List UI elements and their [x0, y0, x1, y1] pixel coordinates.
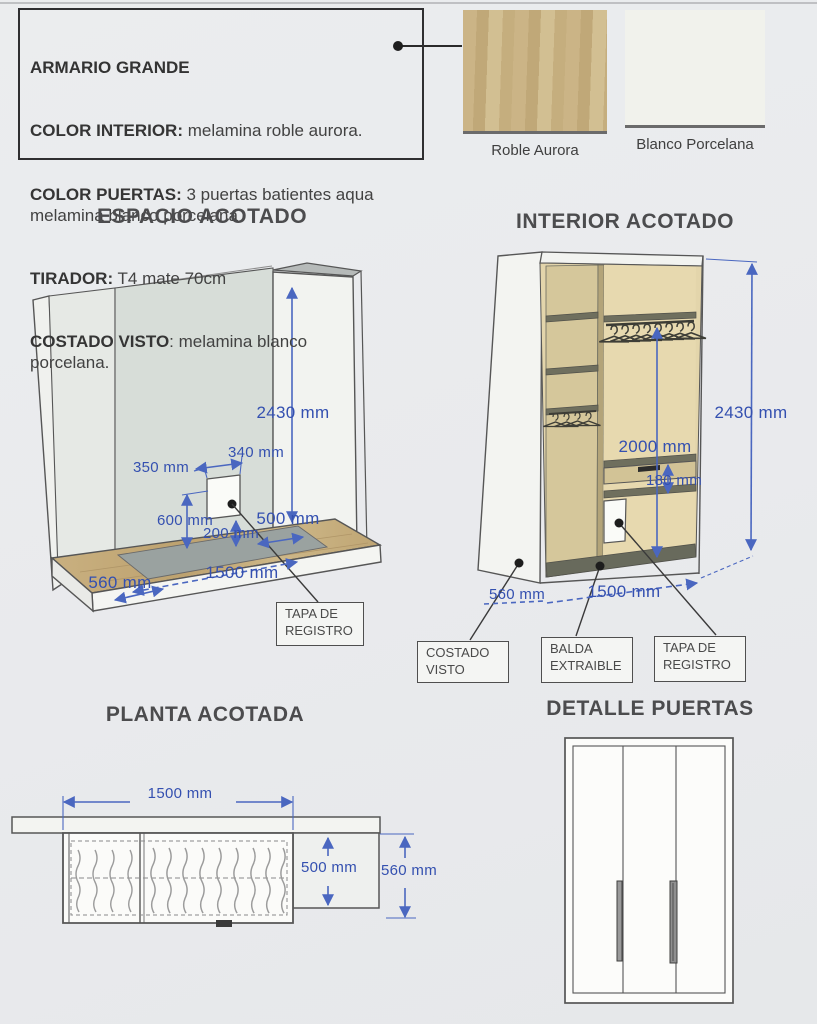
swatch-roble-aurora [463, 10, 607, 134]
espacio-dim-width: 1500 mm [200, 563, 284, 583]
interior-callout-balda: BALDA EXTRAIBLE [541, 637, 633, 683]
spec-title: ARMARIO GRANDE [30, 57, 412, 78]
espacio-dim-hatch-offset: 350 mm [128, 459, 194, 476]
spec-label: COSTADO VISTO [30, 332, 169, 351]
swatch-blanco-porcelana [625, 10, 765, 128]
interior-dim-height: 2430 mm [710, 403, 792, 423]
spec-label: COLOR PUERTAS: [30, 185, 182, 204]
planta-title: PLANTA ACOTADA [60, 703, 350, 727]
spec-line: TIRADOR: T4 mate 70cm [30, 268, 412, 289]
puertas-drawing [565, 738, 733, 1003]
espacio-dim-depth-inner: 500 mm [253, 509, 323, 529]
espacio-callout-tapa: TAPA DE REGISTRO [276, 602, 364, 646]
interior-costado-visto-panel [478, 252, 542, 583]
interior-title: INTERIOR ACOTADO [480, 210, 770, 234]
interior-callout-tapa: TAPA DE REGISTRO [654, 636, 746, 682]
swatch-blanco-label: Blanco Porcelana [625, 136, 765, 153]
spec-sheet-page: ARMARIO GRANDE COLOR INTERIOR: melamina … [0, 0, 817, 1024]
interior-dim-drawer-gap: 180 mm [640, 472, 708, 489]
swatch-roble-label: Roble Aurora [463, 142, 607, 159]
planta-dim-depth-inner: 500 mm [298, 859, 360, 876]
spec-value: T4 mate 70cm [113, 269, 226, 288]
espacio-dim-depth: 560 mm [84, 573, 156, 593]
puertas-title: DETALLE PUERTAS [510, 697, 790, 721]
door-handle-right [670, 881, 677, 963]
spec-box: ARMARIO GRANDE COLOR INTERIOR: melamina … [18, 8, 424, 160]
planta-dim-width: 1500 mm [130, 785, 230, 802]
espacio-dim-hatch-width: 340 mm [222, 444, 290, 461]
planta-handle-mark [216, 920, 232, 927]
spec-line: COSTADO VISTO: melamina blanco porcelana… [30, 331, 412, 373]
interior-dim-rail-height: 2000 mm [612, 437, 698, 457]
interior-callout-costado: COSTADO VISTO [417, 641, 509, 683]
interior-dim-width: 1500 mm [580, 582, 668, 602]
spec-label: TIRADOR: [30, 269, 113, 288]
door-handle-left [617, 881, 622, 961]
spec-label: COLOR INTERIOR: [30, 121, 183, 140]
planta-dim-depth-total: 560 mm [374, 862, 444, 879]
spec-line: COLOR INTERIOR: melamina roble aurora. [30, 120, 412, 141]
spec-value: melamina roble aurora. [183, 121, 363, 140]
interior-dim-depth: 560 mm [482, 586, 552, 603]
espacio-dim-height: 2430 mm [253, 403, 333, 423]
espacio-title: ESPACIO ACOTADO [57, 205, 347, 229]
